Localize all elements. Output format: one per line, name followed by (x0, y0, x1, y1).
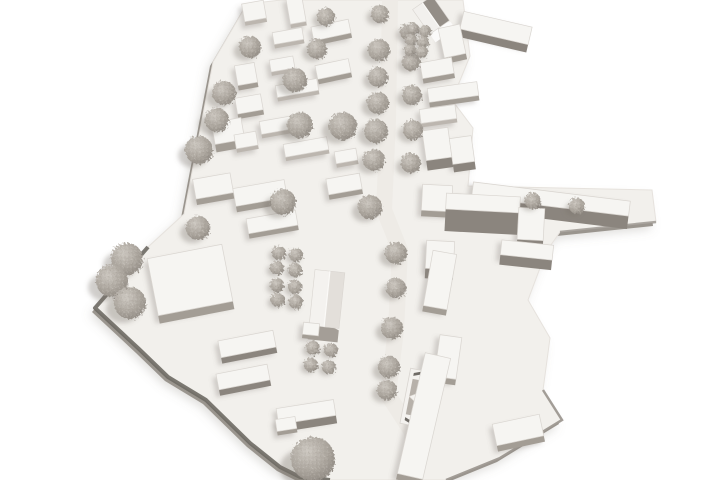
tree-texture (365, 120, 387, 142)
tree-texture (186, 137, 212, 163)
tree-texture (271, 190, 295, 214)
architectural-model-photo (0, 0, 720, 480)
tree-texture (402, 154, 420, 172)
building-block (422, 127, 453, 170)
tree-texture (325, 344, 338, 357)
tree-texture (417, 36, 428, 47)
tree-texture (289, 281, 302, 294)
building-block (302, 322, 320, 340)
tree-texture (308, 40, 326, 58)
tree-texture (404, 121, 422, 139)
tree-texture (386, 243, 406, 263)
tree-texture (323, 361, 336, 374)
tree-texture (272, 294, 285, 307)
building-roof (302, 322, 319, 336)
tree-texture (273, 247, 286, 260)
tree-texture (290, 296, 303, 309)
tree-texture (368, 93, 388, 113)
tree-texture (372, 6, 389, 23)
building-roof (234, 62, 257, 85)
tree-texture (382, 318, 402, 338)
tree-texture (240, 37, 260, 57)
tree-texture (403, 86, 421, 104)
tree-texture (330, 113, 356, 139)
building-roof (422, 127, 452, 160)
building-block (235, 94, 264, 119)
tree-texture (271, 262, 284, 275)
tree-texture (369, 68, 387, 86)
building-roof (517, 207, 545, 240)
tree-texture (290, 249, 303, 262)
tree-texture (187, 217, 209, 239)
tree-texture (318, 9, 335, 26)
building-roof (242, 0, 267, 22)
tree-texture (387, 279, 405, 297)
tree-texture (364, 150, 384, 170)
building-block (449, 136, 476, 173)
tree-texture (526, 194, 541, 209)
tree-texture (570, 199, 585, 214)
tree-texture (379, 357, 399, 377)
tree-texture (378, 381, 396, 399)
tree-texture (271, 279, 284, 292)
photo-stage (0, 0, 720, 480)
building-block (234, 131, 259, 153)
tree-texture (293, 439, 333, 479)
tree-texture (359, 196, 381, 218)
tree-texture (307, 342, 320, 355)
building-block (242, 0, 267, 25)
tree-texture (289, 264, 302, 277)
tree-texture (288, 113, 312, 137)
building-block (444, 193, 520, 235)
building-roof (446, 193, 521, 213)
site-model-svg (0, 0, 720, 480)
tree-texture (305, 359, 318, 372)
tree-texture (284, 69, 306, 91)
tree-texture (416, 46, 427, 57)
tree-texture (206, 109, 228, 131)
building-block (275, 417, 297, 436)
tree-texture (369, 40, 389, 60)
tree-texture (213, 82, 235, 104)
building-roof (449, 136, 474, 165)
tree-texture (419, 25, 430, 36)
building-block (234, 62, 258, 90)
tree-texture (115, 288, 144, 317)
